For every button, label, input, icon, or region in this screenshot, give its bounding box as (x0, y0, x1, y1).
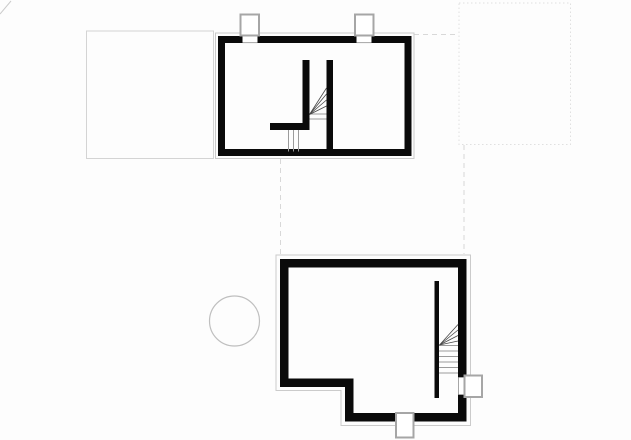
upper-vent-marker-b (355, 15, 374, 36)
site-rect-dotted (459, 3, 571, 145)
upper-vent-marker-a (241, 15, 260, 36)
site-rect-left (87, 31, 214, 159)
upper-stair-winder-line (310, 94, 327, 115)
drawing-viewport (0, 0, 631, 440)
upper-vent-gap-b (357, 36, 372, 44)
lower-vent-marker-right (465, 376, 483, 398)
lower-plan-outline (276, 255, 471, 426)
tree-circle (210, 296, 260, 346)
upper-vent-gap-a (243, 36, 258, 44)
lower-stair-winder-line (440, 336, 459, 346)
upper-stair-l-wall (270, 60, 306, 127)
upper-plan-outline (216, 33, 415, 159)
floor-plan-canvas (0, 0, 631, 440)
lower-vent-marker-bottom (396, 413, 414, 438)
corner-tick (0, 1, 11, 14)
upper-plan-exterior-wall (222, 40, 409, 153)
